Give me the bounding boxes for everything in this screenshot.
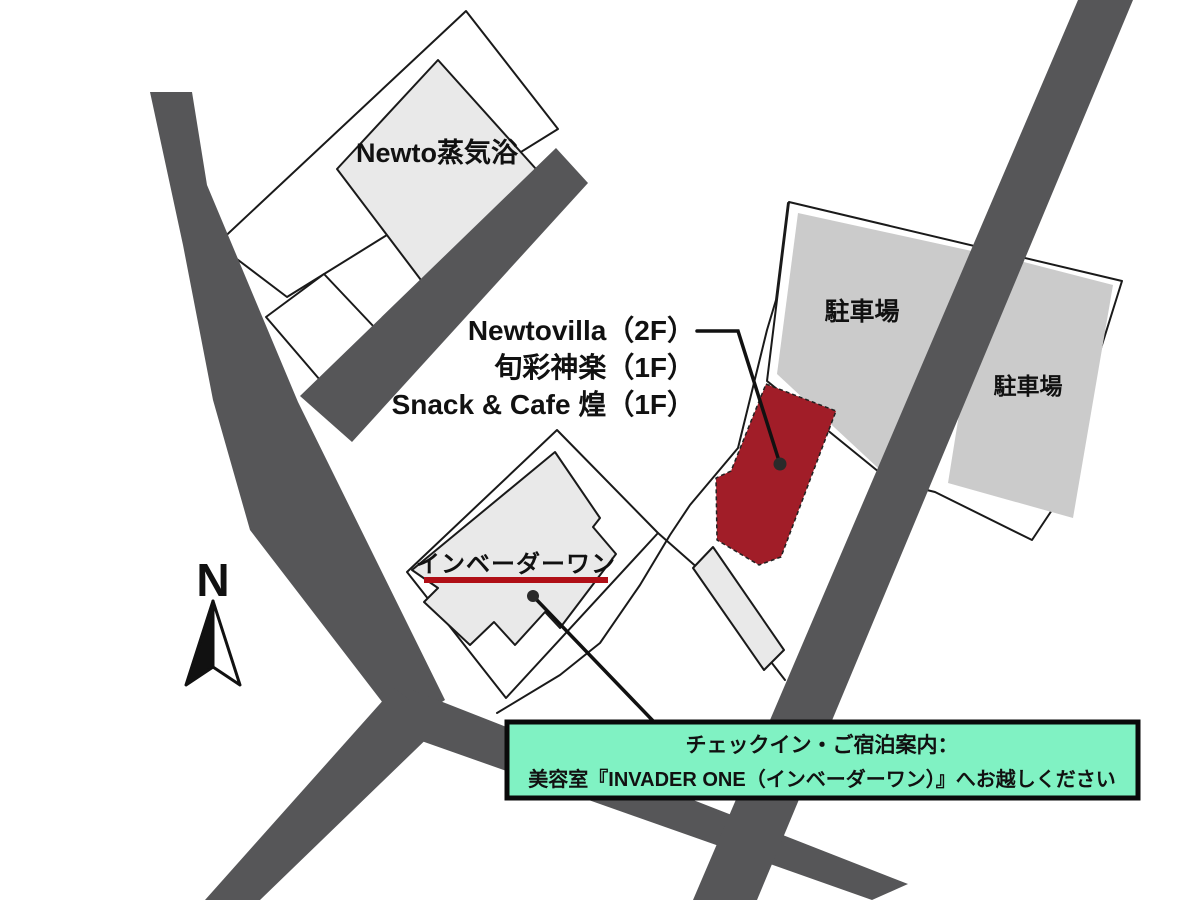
- north-arrow-icon: [186, 601, 213, 685]
- building-newtovilla-target: [716, 384, 836, 565]
- leader-dot-newtovilla: [774, 458, 787, 471]
- salon-label: インベーダーワン: [416, 550, 616, 578]
- leader-line-invader: [533, 596, 656, 724]
- parking-right-label: 駐車場: [994, 373, 1063, 399]
- tenant-line-3: Snack & Cafe 煌（1F）: [392, 388, 695, 420]
- tenant-line-1: Newtovilla（2F）: [468, 314, 695, 346]
- leader-dot-invader: [527, 590, 539, 602]
- checkin-notice-line1: チェックイン・ご宿泊案内：: [686, 733, 959, 757]
- north-compass: N: [186, 554, 240, 685]
- checkin-notice-box: チェックイン・ご宿泊案内： 美容室『INVADER ONE（インベーダーワン）』…: [507, 722, 1138, 798]
- north-label: N: [196, 554, 229, 606]
- newto-building-label: Newto蒸気浴: [356, 137, 519, 168]
- access-map: インベーダーワン Newto蒸気浴 駐車場 駐車場 Newtovilla（2F）…: [0, 0, 1200, 900]
- checkin-notice-line2: 美容室『INVADER ONE（インベーダーワン）』へお越しください: [528, 767, 1115, 791]
- parking-left-label: 駐車場: [824, 297, 899, 326]
- north-arrow-icon-right: [213, 601, 240, 685]
- map-canvas: インベーダーワン Newto蒸気浴 駐車場 駐車場 Newtovilla（2F）…: [0, 0, 1200, 900]
- building-strip: [693, 547, 784, 670]
- tenant-line-2: 旬彩神楽（1F）: [493, 351, 695, 383]
